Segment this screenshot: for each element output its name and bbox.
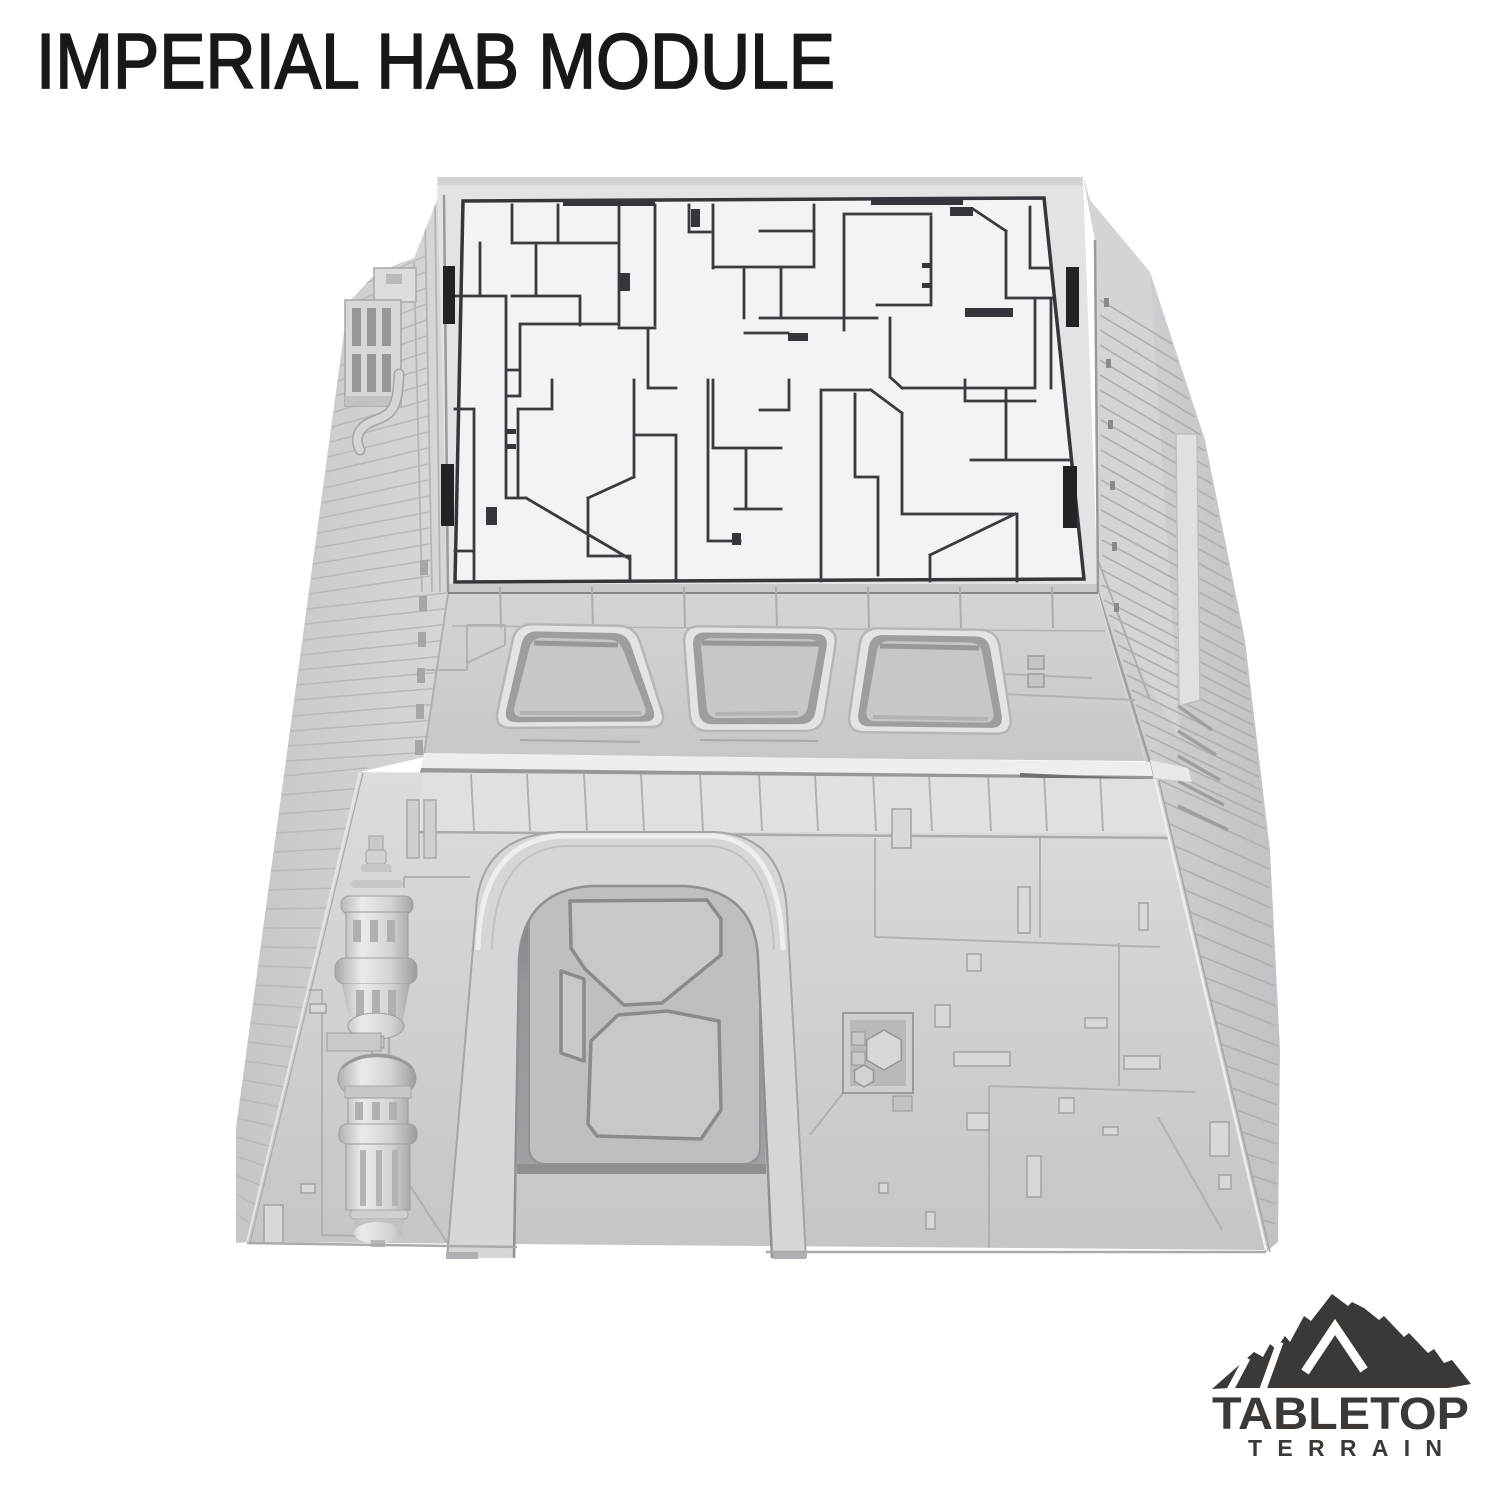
svg-text:TABLETOP: TABLETOP bbox=[1212, 1388, 1469, 1439]
svg-text:IMPERIAL HAB MODULE: IMPERIAL HAB MODULE bbox=[36, 17, 835, 105]
